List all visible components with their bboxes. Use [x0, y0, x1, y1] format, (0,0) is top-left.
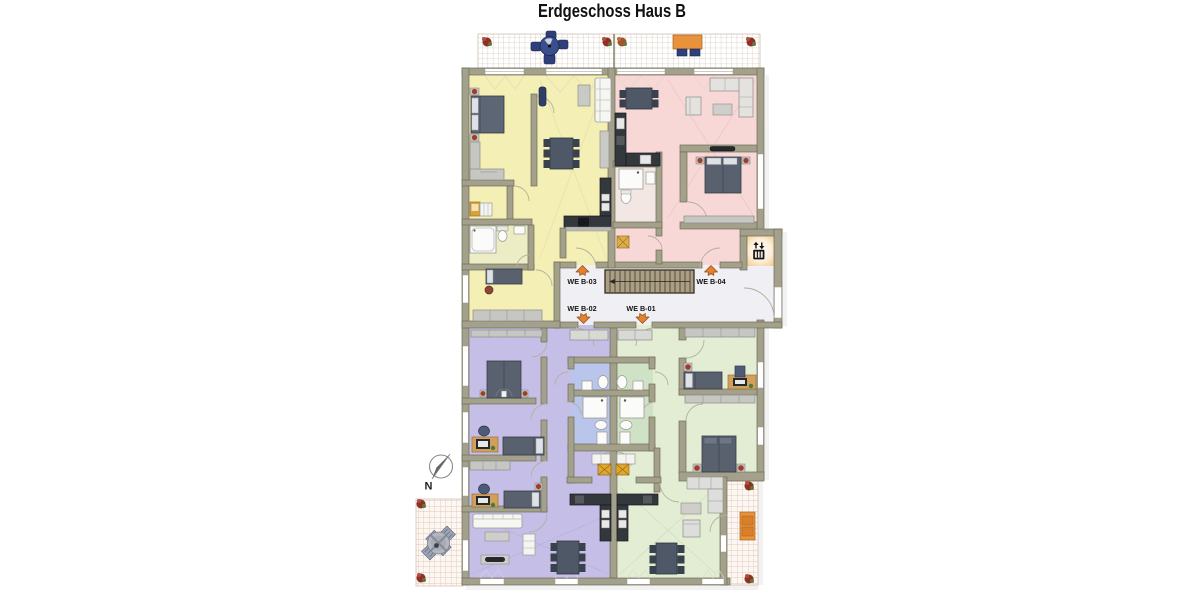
svg-text:WE B-02: WE B-02	[567, 304, 596, 313]
svg-text:N: N	[425, 481, 433, 493]
svg-text:WE B-03: WE B-03	[567, 277, 596, 286]
svg-text:WE B-01: WE B-01	[626, 304, 655, 313]
svg-text:WE B-04: WE B-04	[696, 277, 725, 286]
svg-text:Erdgeschoss Haus B: Erdgeschoss Haus B	[538, 0, 686, 21]
